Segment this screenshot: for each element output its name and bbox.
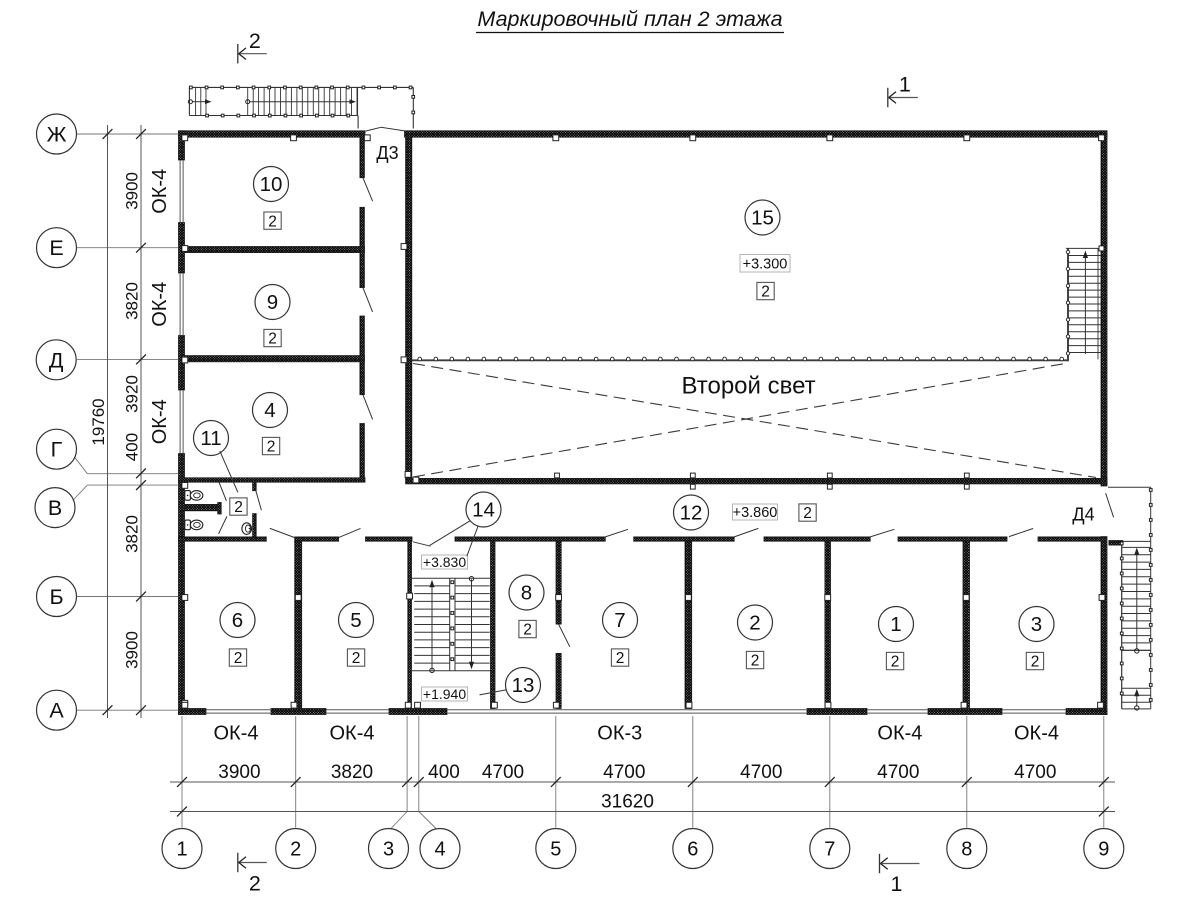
svg-text:3: 3	[383, 839, 394, 861]
svg-text:2: 2	[268, 213, 277, 230]
svg-text:ОК-3: ОК-3	[597, 723, 642, 745]
svg-text:2: 2	[761, 284, 770, 301]
svg-text:Б: Б	[49, 585, 63, 609]
svg-text:4: 4	[434, 839, 445, 861]
svg-text:3820: 3820	[331, 762, 373, 783]
svg-text:400: 400	[122, 433, 141, 461]
svg-text:Д4: Д4	[1072, 505, 1094, 525]
svg-text:3900: 3900	[122, 631, 141, 669]
svg-text:ОК-4: ОК-4	[877, 723, 922, 745]
svg-text:2: 2	[751, 653, 760, 670]
svg-text:2: 2	[891, 654, 900, 671]
svg-text:ОК-4: ОК-4	[149, 282, 171, 327]
svg-text:А: А	[49, 699, 64, 723]
svg-text:ОК-4: ОК-4	[214, 723, 259, 745]
svg-text:ОК-4: ОК-4	[330, 723, 375, 745]
svg-text:5: 5	[550, 839, 561, 861]
svg-text:1: 1	[890, 613, 901, 636]
svg-text:7: 7	[824, 839, 835, 861]
svg-text:4700: 4700	[1014, 762, 1056, 783]
svg-text:10: 10	[260, 173, 283, 196]
svg-text:3820: 3820	[122, 282, 141, 320]
svg-text:ОК-4: ОК-4	[149, 399, 171, 444]
svg-text:9: 9	[267, 291, 278, 314]
svg-text:4700: 4700	[603, 762, 645, 783]
svg-text:Второй свет: Второй свет	[682, 373, 816, 400]
svg-text:6: 6	[687, 839, 698, 861]
svg-text:В: В	[48, 496, 62, 520]
svg-text:ОК-4: ОК-4	[1014, 723, 1059, 745]
svg-text:1: 1	[891, 872, 903, 896]
svg-text:2: 2	[234, 499, 243, 516]
svg-text:2: 2	[267, 439, 276, 456]
svg-text:Д3: Д3	[376, 143, 398, 163]
svg-text:+3.300: +3.300	[743, 257, 788, 273]
svg-text:3: 3	[1031, 613, 1042, 636]
svg-text:4700: 4700	[877, 762, 919, 783]
svg-text:Ж: Ж	[47, 123, 67, 147]
svg-text:+3.830: +3.830	[423, 554, 466, 570]
svg-text:19760: 19760	[89, 398, 108, 445]
svg-text:3900: 3900	[122, 172, 141, 210]
svg-text:9: 9	[1098, 839, 1109, 861]
svg-text:6: 6	[232, 609, 243, 632]
svg-text:8: 8	[521, 582, 532, 605]
svg-text:Е: Е	[49, 236, 63, 260]
svg-text:2: 2	[523, 622, 532, 639]
svg-text:4700: 4700	[482, 762, 524, 783]
svg-text:2: 2	[1031, 654, 1040, 671]
svg-text:2: 2	[234, 650, 243, 667]
svg-text:Г: Г	[51, 438, 63, 462]
svg-text:Д: Д	[49, 348, 64, 372]
svg-text:2: 2	[803, 505, 812, 522]
svg-text:3920: 3920	[122, 375, 141, 413]
svg-text:2: 2	[249, 872, 261, 896]
svg-text:2: 2	[268, 331, 277, 348]
svg-text:11: 11	[200, 427, 221, 450]
svg-text:5: 5	[350, 609, 361, 632]
svg-text:Маркировочный план 2 этажа: Маркировочный план 2 этажа	[477, 7, 782, 31]
svg-text:1: 1	[176, 839, 187, 861]
svg-text:400: 400	[428, 762, 460, 783]
svg-text:2: 2	[616, 650, 625, 667]
svg-text:+1.940: +1.940	[423, 686, 466, 702]
svg-text:13: 13	[512, 674, 535, 697]
svg-text:ОК-4: ОК-4	[149, 169, 171, 214]
svg-text:2: 2	[290, 839, 301, 861]
svg-text:31620: 31620	[601, 792, 654, 813]
svg-text:3900: 3900	[218, 762, 260, 783]
svg-text:12: 12	[680, 502, 703, 525]
svg-text:14: 14	[472, 499, 495, 522]
svg-text:2: 2	[249, 29, 261, 53]
svg-text:3820: 3820	[122, 515, 141, 553]
svg-text:4700: 4700	[740, 762, 782, 783]
svg-text:2: 2	[749, 612, 760, 635]
svg-text:8: 8	[961, 839, 972, 861]
svg-text:15: 15	[751, 207, 774, 230]
svg-text:1: 1	[899, 73, 911, 97]
svg-text:4: 4	[264, 399, 275, 422]
svg-text:7: 7	[614, 609, 625, 632]
svg-text:+3.860: +3.860	[733, 505, 778, 521]
svg-text:2: 2	[352, 650, 361, 667]
